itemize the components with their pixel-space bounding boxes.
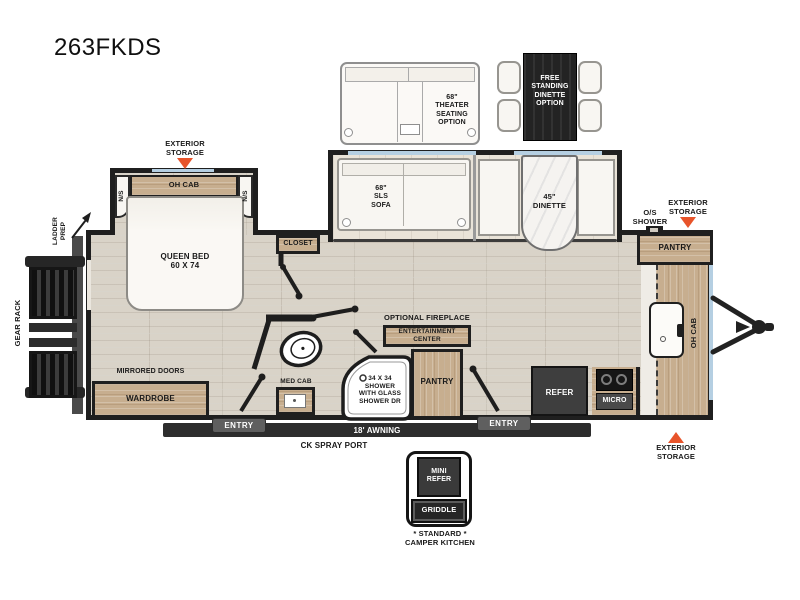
- bedroom-oh-cab-label: OH CAB: [130, 181, 238, 190]
- burner-icon: [601, 374, 612, 385]
- exterior-storage-bedroom-label: EXTERIOR STORAGE: [148, 140, 222, 158]
- front-window: [709, 250, 713, 400]
- dinette-label: 45" DINETTE: [521, 193, 578, 211]
- mini-refer-label: MINI REFER: [417, 468, 461, 485]
- gear-rack-label: GEAR RACK: [12, 283, 24, 363]
- hitch-coupler: [752, 320, 766, 334]
- hitch-coupler-tongue: [764, 323, 774, 331]
- refrigerator-label: REFER: [531, 388, 588, 397]
- med-cab: [276, 387, 315, 415]
- queen-bed-label: QUEEN BED 60 X 74: [126, 252, 244, 271]
- theater-backrest: [345, 67, 475, 82]
- griddle-label: GRIDDLE: [411, 506, 467, 515]
- outside-shower-port-notch: [650, 228, 658, 232]
- entertainment-center-label: ENTERTAINMENT CENTER: [383, 328, 471, 343]
- sink-drain: [660, 336, 666, 342]
- shower-label: 34 X 34 SHOWER WITH GLASS SHOWER DR: [348, 375, 412, 406]
- awning-label: 18' AWNING: [163, 426, 591, 435]
- dinette-option-label: FREE STANDING DINETTE OPTION: [523, 75, 577, 108]
- hitch-frame-upper: [713, 298, 754, 323]
- dinette-bench-left: [478, 159, 520, 236]
- wardrobe-label: WARDROBE: [92, 394, 209, 403]
- ladder-prep-label: LADDER PREP: [51, 203, 69, 259]
- closet-label: CLOSET: [276, 240, 320, 248]
- dinette-option-chair: [578, 61, 602, 94]
- theater-cup-tray: [400, 124, 420, 135]
- living-slide-window: [348, 151, 476, 155]
- dinette-option-chair: [497, 61, 521, 94]
- floorplan-canvas: 263FKDS 68" THEATER SEATING OPTION FREE …: [0, 0, 800, 600]
- med-cab-label: MED CAB: [272, 378, 320, 386]
- sofa-knob-right: [457, 218, 466, 227]
- sofa-label: 68" SLS SOFA: [346, 185, 416, 210]
- dinette-option-chair: [578, 99, 602, 132]
- theater-recliner-knob-left: [344, 128, 353, 137]
- ck-spray-port-label: CK SPRAY PORT: [274, 441, 394, 450]
- exterior-storage-bedroom-marker: [177, 158, 193, 169]
- front-pantry-label: PANTRY: [637, 243, 713, 252]
- galley-wall: [636, 367, 640, 415]
- exterior-storage-front-bottom-marker: [668, 432, 684, 443]
- bedroom-slide-window: [152, 169, 214, 172]
- burner-icon: [616, 374, 627, 385]
- slide-divider-wall: [473, 155, 476, 241]
- gear-rack-panel-bottom: [29, 351, 77, 398]
- camper-kitchen-caption: * STANDARD * CAMPER KITCHEN: [392, 530, 488, 548]
- sofa-knob-left: [342, 218, 351, 227]
- gear-rack-panel-top: [29, 267, 77, 319]
- outside-shower-port: [646, 226, 663, 234]
- nightstand-left-label: N/S: [117, 181, 127, 211]
- optional-fireplace-label: OPTIONAL FIREPLACE: [374, 314, 480, 323]
- hitch-jack: [736, 321, 750, 333]
- cooktop: [596, 369, 633, 391]
- exterior-storage-front-top-label: EXTERIOR STORAGE: [652, 199, 724, 217]
- dinette-bench-right: [577, 159, 615, 236]
- nightstand-right-label: N/S: [241, 181, 251, 211]
- kitchen-sink: [649, 302, 684, 358]
- sofa-backrest: [342, 163, 466, 176]
- theater-seating-label: 68" THEATER SEATING OPTION: [424, 94, 480, 127]
- lav-drain: [293, 399, 296, 402]
- exterior-storage-front-top-marker: [680, 217, 696, 228]
- mirrored-doors-label: MIRRORED DOORS: [98, 368, 203, 376]
- page-title: 263FKDS: [54, 34, 174, 62]
- theater-recliner-knob-right: [467, 128, 476, 137]
- dinette-option-chair: [497, 99, 521, 132]
- microwave-label: MICRO: [596, 397, 633, 405]
- exterior-storage-front-bottom-label: EXTERIOR STORAGE: [640, 444, 712, 462]
- theater-backrest-divider: [408, 67, 409, 82]
- ladder-prep-arrowhead: [82, 212, 91, 223]
- faucet-icon: [677, 324, 684, 337]
- front-oh-cab-label: OH CAB: [689, 308, 699, 358]
- gear-rack-crossbar: [29, 323, 77, 332]
- bath-pantry-label: PANTRY: [411, 377, 463, 386]
- hitch-frame-lower: [713, 331, 754, 352]
- gear-rack-crossbar: [29, 338, 77, 347]
- rear-window: [87, 260, 91, 310]
